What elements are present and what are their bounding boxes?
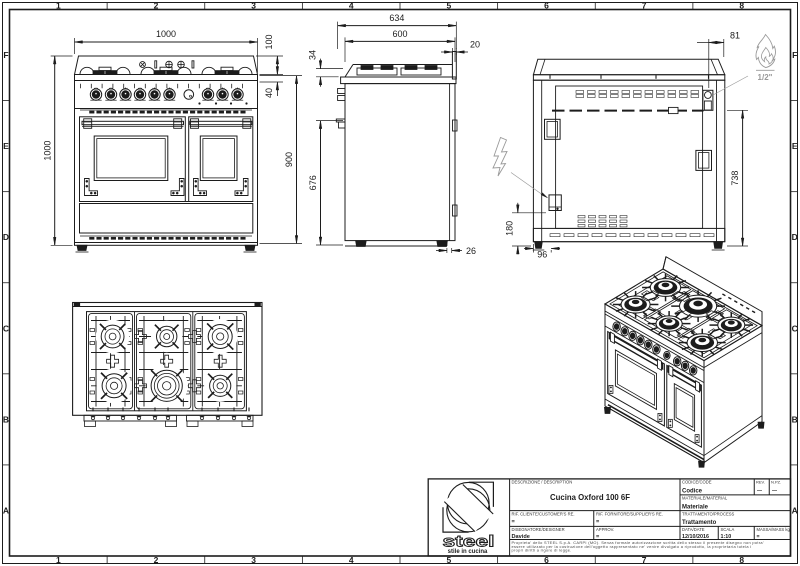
svg-text:RIF. FORNITORE/SUPPLIER'S RE.: RIF. FORNITORE/SUPPLIER'S RE.	[596, 511, 663, 516]
svg-text:900: 900	[284, 152, 294, 167]
svg-text:4: 4	[349, 1, 354, 11]
svg-text:REV.: REV.	[756, 480, 765, 485]
svg-text:26: 26	[466, 246, 476, 256]
svg-text:N.PZ.: N.PZ.	[771, 480, 781, 485]
svg-text:Materiale: Materiale	[682, 505, 709, 511]
svg-text:7: 7	[642, 1, 647, 11]
svg-text:APPROV.: APPROV.	[596, 527, 614, 532]
svg-text:A: A	[792, 505, 798, 515]
svg-text:1: 1	[56, 1, 61, 11]
svg-text:8: 8	[739, 555, 744, 565]
svg-text:600: 600	[392, 29, 407, 39]
svg-text:SCALA: SCALA	[721, 527, 735, 532]
svg-text:1000: 1000	[43, 141, 53, 161]
svg-text:DATA/DATE: DATA/DATE	[682, 527, 705, 532]
svg-text:F: F	[3, 50, 8, 60]
svg-text:MATERIALE/MATERIAL: MATERIALE/MATERIAL	[682, 496, 728, 501]
svg-text:1/2": 1/2"	[758, 73, 773, 82]
svg-text:B: B	[792, 414, 798, 424]
svg-text:D: D	[792, 232, 798, 242]
svg-text:F: F	[792, 50, 797, 60]
svg-text:A: A	[3, 505, 9, 515]
svg-text:34: 34	[307, 50, 317, 60]
svg-text:DISEGNATORE/DESIGNER: DISEGNATORE/DESIGNER	[512, 527, 565, 532]
svg-text:2: 2	[154, 1, 159, 11]
svg-text:4: 4	[349, 555, 354, 565]
svg-text:steel: steel	[443, 534, 495, 551]
svg-text:20: 20	[470, 40, 480, 50]
svg-text:3: 3	[251, 555, 256, 565]
svg-text:5: 5	[446, 555, 451, 565]
svg-text:RIF. CLIENTE/CUSTOMER'S RE.: RIF. CLIENTE/CUSTOMER'S RE.	[512, 511, 575, 516]
svg-text:DESCRIZIONE / DESCRIPTION: DESCRIZIONE / DESCRIPTION	[512, 480, 573, 485]
svg-text:676: 676	[308, 175, 318, 190]
svg-text:6: 6	[544, 555, 549, 565]
svg-text:100: 100	[264, 34, 274, 49]
svg-text:C: C	[792, 323, 798, 333]
svg-text:C: C	[3, 323, 9, 333]
svg-text:propri diritti a rigore di leg: propri diritti a rigore di legge.	[512, 548, 572, 553]
svg-text:D: D	[3, 232, 9, 242]
svg-text:3: 3	[251, 1, 256, 11]
svg-text:96: 96	[537, 250, 547, 260]
svg-text:180: 180	[505, 221, 515, 236]
svg-text:—: —	[772, 488, 777, 494]
svg-text:634: 634	[389, 13, 404, 23]
svg-text:1: 1	[56, 555, 61, 565]
svg-text:738: 738	[730, 171, 740, 186]
svg-text:8: 8	[739, 1, 744, 11]
svg-text:Cucina Oxford 100 6F: Cucina Oxford 100 6F	[550, 493, 630, 502]
svg-text:—: —	[757, 488, 762, 494]
svg-text:81: 81	[730, 31, 740, 41]
svg-text:TRATTAMENTO/PROCESS: TRATTAMENTO/PROCESS	[682, 511, 735, 516]
svg-text:Trattamento: Trattamento	[682, 520, 717, 526]
svg-text:MASSA/MASS kg: MASSA/MASS kg	[757, 527, 791, 532]
svg-text:5: 5	[446, 1, 451, 11]
svg-text:E: E	[3, 141, 9, 151]
svg-text:6: 6	[544, 1, 549, 11]
svg-text:Codice: Codice	[682, 488, 703, 494]
svg-text:B: B	[3, 414, 9, 424]
svg-text:stile in cucina: stile in cucina	[448, 549, 488, 555]
svg-text:7: 7	[642, 555, 647, 565]
svg-text:CODICE/CODE: CODICE/CODE	[682, 480, 712, 485]
svg-text:2: 2	[154, 555, 159, 565]
svg-text:40: 40	[264, 88, 274, 98]
svg-text:E: E	[792, 141, 798, 151]
svg-text:1000: 1000	[156, 29, 176, 39]
